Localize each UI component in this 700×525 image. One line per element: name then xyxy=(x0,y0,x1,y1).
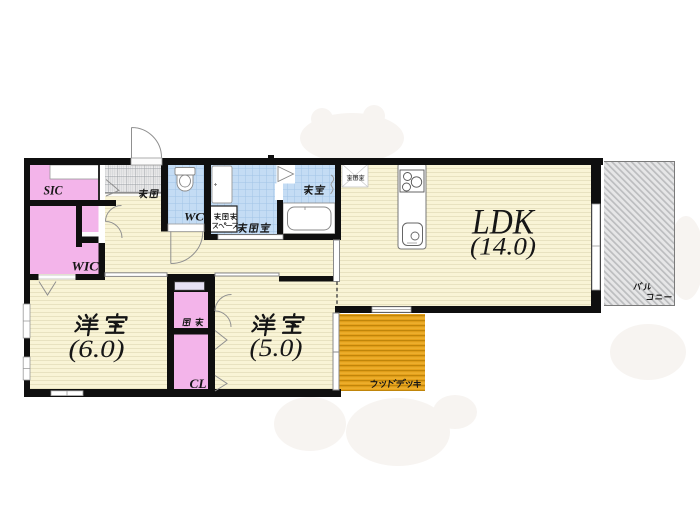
svg-text:(14.0): (14.0) xyxy=(470,234,536,261)
svg-text:(6.0): (6.0) xyxy=(69,336,125,363)
svg-text:WIC: WIC xyxy=(72,259,99,274)
svg-text:CL: CL xyxy=(190,376,207,391)
svg-text:SIC: SIC xyxy=(44,183,63,198)
svg-text:(5.0): (5.0) xyxy=(250,335,303,362)
svg-text:WC: WC xyxy=(184,212,204,224)
